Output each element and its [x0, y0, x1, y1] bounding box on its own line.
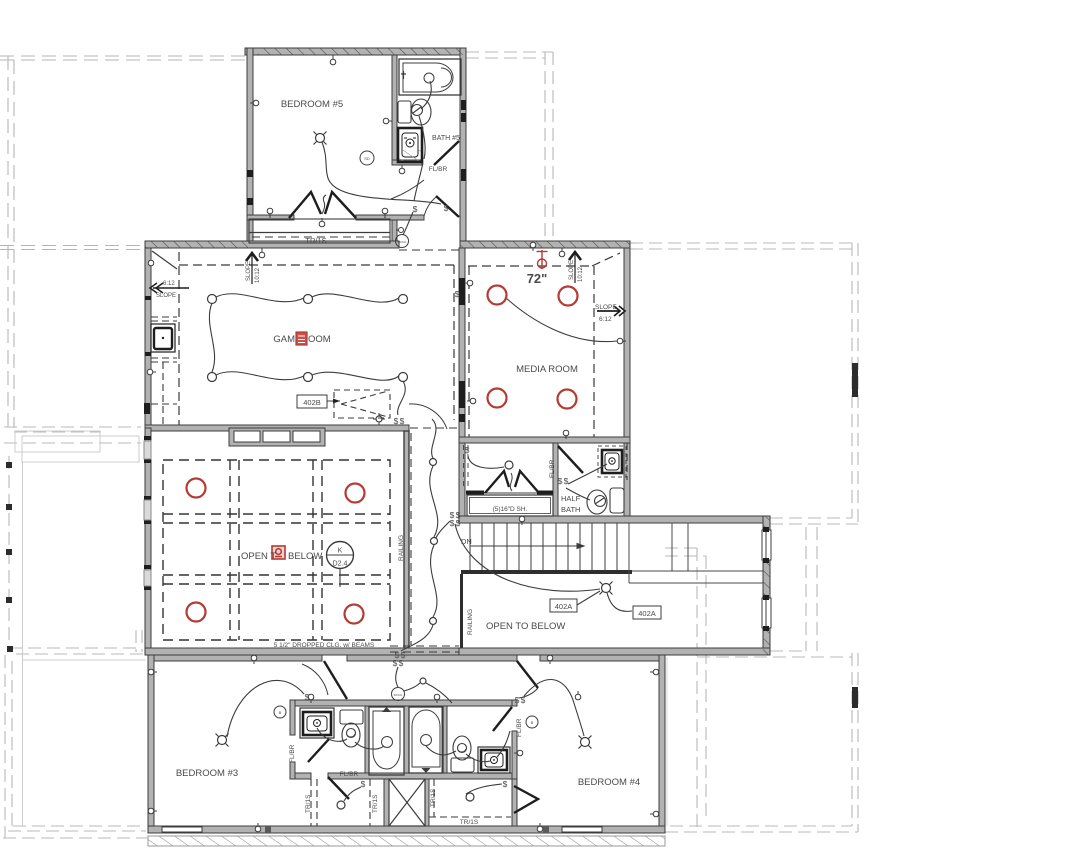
svg-text:FL/BR: FL/BR	[516, 718, 523, 737]
svg-text:$: $	[394, 416, 399, 426]
svg-text:B: B	[279, 710, 282, 715]
svg-text:TR/1S: TR/1S	[460, 819, 479, 826]
svg-text:6:12: 6:12	[163, 281, 175, 287]
svg-text:SLOPE: SLOPE	[246, 261, 252, 281]
svg-text:$: $	[395, 650, 400, 660]
svg-text:402A: 402A	[555, 602, 573, 611]
svg-text:TR/1S: TR/1S	[305, 794, 312, 813]
svg-text:OPEN T: OPEN T	[241, 551, 276, 562]
svg-text:K: K	[338, 548, 343, 555]
svg-text:BEDROOM #4: BEDROOM #4	[578, 777, 640, 788]
svg-text:SLOPE: SLOPE	[595, 304, 617, 311]
svg-text:TR/1S: TR/1S	[430, 788, 437, 807]
svg-text:$: $	[521, 695, 526, 705]
svg-text:GAM: GAM	[273, 334, 295, 345]
svg-text:$: $	[361, 779, 366, 789]
svg-text:$: $	[558, 476, 563, 486]
svg-text:5 1/2" DROPPED CLG. w/ BEAMS: 5 1/2" DROPPED CLG. w/ BEAMS	[274, 642, 375, 649]
svg-text:OOM: OOM	[308, 334, 331, 345]
svg-text:10:12: 10:12	[255, 267, 261, 283]
svg-text:$: $	[456, 518, 461, 528]
svg-text:BELOW: BELOW	[288, 551, 322, 562]
svg-text:BEDROOM #5: BEDROOM #5	[281, 99, 343, 110]
svg-text:$: $	[413, 204, 418, 214]
svg-text:60/CO: 60/CO	[398, 240, 407, 244]
svg-text:SD: SD	[364, 156, 370, 161]
svg-text:HALF: HALF	[561, 494, 581, 503]
svg-text:SLOPE: SLOPE	[156, 293, 176, 299]
svg-text:BEDROOM #3: BEDROOM #3	[176, 768, 238, 779]
svg-text:$: $	[444, 203, 449, 213]
svg-text:RAILING: RAILING	[398, 535, 405, 561]
svg-text:BATH: BATH	[561, 505, 580, 514]
svg-text:$: $	[515, 695, 520, 705]
svg-text:$: $	[305, 692, 310, 702]
svg-text:SLOPE: SLOPE	[569, 260, 575, 280]
svg-text:DN: DN	[461, 537, 472, 546]
svg-text:D2.4: D2.4	[333, 561, 348, 568]
svg-text:$: $	[455, 289, 460, 299]
svg-text:10:12: 10:12	[578, 266, 584, 282]
svg-text:RAILING: RAILING	[467, 609, 474, 635]
svg-text:FL/BR: FL/BR	[340, 771, 359, 778]
svg-text:TR/1S: TR/1S	[372, 794, 379, 813]
svg-text:$: $	[564, 476, 569, 486]
svg-text:FL/BR: FL/BR	[289, 744, 296, 763]
svg-text:BATH #5: BATH #5	[432, 135, 460, 142]
svg-text:6:12: 6:12	[599, 316, 612, 323]
svg-text:(5)16"D SH.: (5)16"D SH.	[493, 506, 528, 513]
svg-text:$: $	[401, 650, 406, 660]
svg-text:MEDIA ROOM: MEDIA ROOM	[516, 364, 578, 375]
svg-text:B: B	[531, 720, 534, 725]
svg-text:$: $	[450, 518, 455, 528]
svg-text:FL/BR: FL/BR	[429, 166, 448, 173]
svg-text:402B: 402B	[303, 398, 321, 407]
svg-text:$: $	[503, 779, 508, 789]
svg-text:$: $	[465, 445, 470, 455]
svg-text:FL/BR: FL/BR	[549, 459, 556, 478]
svg-text:$: $	[400, 416, 405, 426]
svg-text:402A: 402A	[638, 609, 656, 618]
svg-text:OPEN TO BELOW: OPEN TO BELOW	[486, 621, 565, 632]
svg-text:72": 72"	[527, 271, 548, 286]
svg-text:60/CO: 60/CO	[394, 693, 403, 697]
svg-text:TR/1S: TR/1S	[305, 236, 326, 245]
